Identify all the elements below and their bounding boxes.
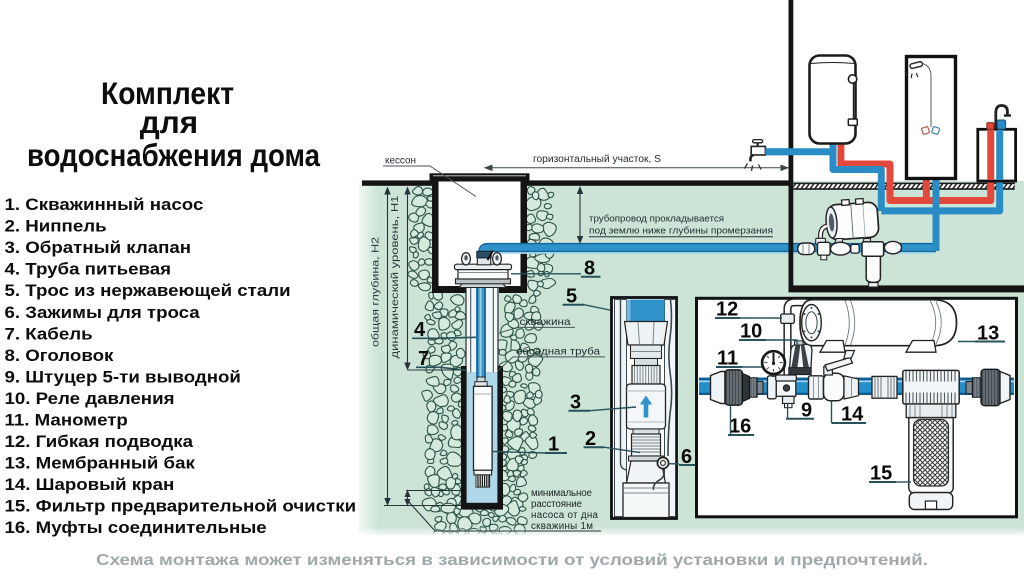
svg-text:1. Скважинный насос: 1. Скважинный насос: [5, 195, 204, 214]
svg-text:минимальное: минимальное: [531, 488, 593, 499]
svg-text:10. Реле давления: 10. Реле давления: [5, 389, 175, 408]
svg-text:горизонтальный участок, S: горизонтальный участок, S: [533, 154, 661, 165]
svg-text:кессон: кессон: [385, 156, 416, 167]
svg-text:15. Фильтр предварительной очи: 15. Фильтр предварительной очистки: [5, 496, 357, 515]
svg-text:под землю ниже глубины промерз: под землю ниже глубины промерзания: [589, 225, 773, 236]
svg-text:8: 8: [584, 258, 595, 280]
svg-text:скважины 1м: скважины 1м: [531, 521, 593, 532]
svg-text:для: для: [140, 104, 198, 140]
svg-text:11. Манометр: 11. Манометр: [5, 410, 128, 429]
svg-text:12. Гибкая подводка: 12. Гибкая подводка: [5, 432, 195, 451]
svg-text:трубопровод прокладывается: трубопровод прокладывается: [589, 213, 724, 224]
svg-text:расстояние: расстояние: [531, 499, 583, 510]
svg-text:4: 4: [414, 319, 426, 341]
svg-text:Схема монтажа может изменяться: Схема монтажа может изменяться в зависим…: [96, 552, 928, 569]
svg-text:5. Трос из нержавеющей стали: 5. Трос из нержавеющей стали: [5, 281, 291, 300]
svg-text:водоснабжения дома: водоснабжения дома: [27, 137, 320, 173]
svg-text:насоса от дна: насоса от дна: [531, 510, 599, 521]
svg-text:7. Кабель: 7. Кабель: [5, 324, 93, 343]
svg-text:3. Обратный клапан: 3. Обратный клапан: [5, 238, 192, 257]
svg-text:7: 7: [418, 348, 429, 370]
svg-text:13. Мембранный бак: 13. Мембранный бак: [5, 453, 195, 472]
svg-text:обсадная труба: обсадная труба: [516, 346, 601, 357]
svg-text:9. Штуцер 5-ти выводной: 9. Штуцер 5-ти выводной: [5, 367, 241, 386]
svg-text:4. Труба питьевая: 4. Труба питьевая: [5, 259, 172, 278]
svg-text:2. Ниппель: 2. Ниппель: [5, 216, 107, 235]
svg-text:общая глубина, Н2: общая глубина, Н2: [370, 237, 382, 347]
svg-text:динамический уровень, Н1: динамический уровень, Н1: [390, 195, 401, 358]
svg-text:14. Шаровый кран: 14. Шаровый кран: [5, 475, 175, 494]
svg-text:скважина: скважина: [520, 317, 572, 328]
svg-text:8. Оголовок: 8. Оголовок: [5, 346, 114, 365]
svg-text:16. Муфты соединительные: 16. Муфты соединительные: [5, 518, 267, 537]
svg-text:6. Зажимы для троса: 6. Зажимы для троса: [5, 303, 201, 322]
